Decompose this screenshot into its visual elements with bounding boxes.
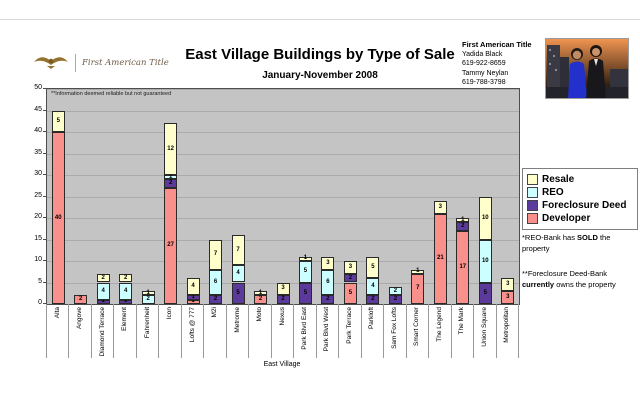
bar-segment: 3 bbox=[501, 278, 514, 291]
bar-segment: 2 bbox=[209, 295, 222, 304]
bar-segment: 10 bbox=[479, 240, 492, 283]
y-tick-label: 5 bbox=[6, 278, 42, 285]
page-divider bbox=[0, 19, 640, 20]
y-tick bbox=[43, 131, 46, 132]
segment-value-label: 7 bbox=[233, 247, 244, 253]
y-tick bbox=[43, 260, 46, 261]
segment-value-label: 4 bbox=[233, 270, 244, 276]
category-label: Icon bbox=[165, 307, 174, 359]
plot-area: **Information deemed reliable but not gu… bbox=[46, 88, 520, 305]
gridline bbox=[47, 89, 519, 90]
segment-value-label: 7 bbox=[412, 285, 423, 291]
category-tick bbox=[271, 304, 272, 358]
segment-value-label: 2 bbox=[143, 296, 154, 302]
segment-value-label: 10 bbox=[480, 215, 491, 221]
gridline bbox=[47, 261, 519, 262]
segment-value-label: 6 bbox=[322, 279, 333, 285]
segment-value-label: 7 bbox=[210, 251, 221, 257]
segment-value-label: 5 bbox=[300, 268, 311, 274]
bar-segment: 2 bbox=[277, 295, 290, 304]
category-label: Union Square bbox=[480, 307, 489, 359]
segment-value-label: 2 bbox=[98, 275, 109, 281]
category-tick bbox=[428, 304, 429, 358]
category-tick bbox=[473, 304, 474, 358]
category-label: Sam Fox Lofts bbox=[390, 307, 399, 359]
foreclosure-deed-swatch-icon bbox=[527, 200, 538, 211]
segment-value-label: 5 bbox=[345, 290, 356, 296]
category-label: Smart Corner bbox=[412, 307, 421, 359]
bar-segment: 5 bbox=[52, 111, 65, 133]
category-label: The Legend bbox=[435, 307, 444, 359]
company-logo: First American Title bbox=[33, 50, 169, 76]
bar-segment: 2 bbox=[321, 295, 334, 304]
segment-value-label: 3 bbox=[435, 204, 446, 210]
resale-swatch-icon bbox=[527, 174, 538, 185]
bar-segment: 1 bbox=[164, 175, 177, 179]
category-label: Diamond Terrace bbox=[98, 307, 107, 359]
bar-segment: 3 bbox=[277, 283, 290, 296]
legend-item-resale: Resale bbox=[527, 173, 633, 186]
gridline bbox=[47, 197, 519, 198]
y-tick bbox=[43, 196, 46, 197]
bar-segment: 4 bbox=[366, 278, 379, 295]
y-tick-label: 40 bbox=[6, 127, 42, 134]
segment-value-label: 3 bbox=[502, 294, 513, 300]
segment-value-label: 2 bbox=[120, 275, 131, 281]
bar-segment: 5 bbox=[232, 283, 245, 305]
segment-value-label: 12 bbox=[165, 146, 176, 152]
contact-line: 619-788-3798 bbox=[462, 78, 532, 88]
segment-value-label: 5 bbox=[53, 118, 64, 124]
category-tick bbox=[68, 304, 69, 358]
legend-item-foreclosure-deed: Foreclosure Deed bbox=[527, 199, 633, 212]
bar-segment: 21 bbox=[434, 214, 447, 304]
segment-value-label: 4 bbox=[188, 283, 199, 289]
gridline bbox=[47, 218, 519, 219]
category-tick bbox=[46, 304, 47, 358]
bar-segment: 2 bbox=[254, 295, 267, 304]
y-tick-label: 45 bbox=[6, 106, 42, 113]
segment-value-label: 2 bbox=[75, 296, 86, 302]
bar-segment: 2 bbox=[389, 287, 402, 296]
segment-value-label: 3 bbox=[278, 285, 289, 291]
contact-block: First American Title Yadida Black 619-92… bbox=[462, 40, 532, 88]
bar-segment: 4 bbox=[119, 283, 132, 300]
legend-item-reo: REO bbox=[527, 186, 633, 199]
category-label: Angove bbox=[75, 307, 84, 359]
category-label: Lofts @ 777 bbox=[188, 307, 197, 359]
bar-segment: 5 bbox=[299, 283, 312, 305]
segment-value-label: 4 bbox=[98, 288, 109, 294]
bar-segment: 10 bbox=[479, 197, 492, 240]
foreclosure-deed-note: **Foreclosure Deed-Bank currently owns t… bbox=[522, 268, 634, 290]
category-tick bbox=[248, 304, 249, 358]
bar-segment: 2 bbox=[142, 295, 155, 304]
segment-value-label: 5 bbox=[367, 264, 378, 270]
bar-segment: 6 bbox=[209, 270, 222, 296]
y-tick-label: 30 bbox=[6, 170, 42, 177]
category-label: Metrome bbox=[233, 307, 242, 359]
y-tick-label: 20 bbox=[6, 213, 42, 220]
category-tick bbox=[406, 304, 407, 358]
bar-segment: 1 bbox=[142, 291, 155, 295]
y-tick bbox=[43, 153, 46, 154]
y-tick-label: 35 bbox=[6, 149, 42, 156]
bar-segment: 5 bbox=[299, 261, 312, 283]
category-tick bbox=[518, 304, 519, 358]
category-label: Metropolitan bbox=[502, 307, 511, 359]
category-tick bbox=[181, 304, 182, 358]
chart-legend: Resale REO Foreclosure Deed Developer bbox=[522, 168, 638, 230]
gridline bbox=[47, 132, 519, 133]
segment-value-label: 2 bbox=[322, 296, 333, 302]
segment-value-label: 10 bbox=[480, 258, 491, 264]
category-label: Element bbox=[120, 307, 129, 359]
category-tick bbox=[361, 304, 362, 358]
category-label: The Mark bbox=[457, 307, 466, 359]
segment-value-label: 40 bbox=[53, 215, 64, 221]
category-label: Nexus bbox=[278, 307, 287, 359]
contact-line: 619-922-8659 bbox=[462, 59, 532, 69]
y-tick bbox=[43, 174, 46, 175]
eagle-icon bbox=[33, 51, 69, 76]
bar-segment: 5 bbox=[479, 283, 492, 305]
segment-value-label: 3 bbox=[345, 264, 356, 270]
segment-value-label: 1 bbox=[255, 290, 266, 296]
bar-segment: 7 bbox=[411, 274, 424, 304]
category-label: Fahrenheit bbox=[143, 307, 152, 359]
segment-value-label: 2 bbox=[457, 223, 468, 229]
bar-segment: 2 bbox=[119, 274, 132, 283]
segment-value-label: 1 bbox=[457, 217, 468, 223]
logo-divider bbox=[75, 54, 76, 72]
y-tick bbox=[43, 110, 46, 111]
contact-line: Tammy Neylan bbox=[462, 69, 532, 79]
legend-item-developer: Developer bbox=[527, 212, 633, 225]
bar-segment: 2 bbox=[366, 295, 379, 304]
reo-swatch-icon bbox=[527, 187, 538, 198]
contact-company: First American Title bbox=[462, 40, 532, 50]
segment-value-label: 1 bbox=[412, 268, 423, 274]
category-tick bbox=[136, 304, 137, 358]
category-tick bbox=[158, 304, 159, 358]
bar-segment: 4 bbox=[187, 278, 200, 295]
segment-value-label: 2 bbox=[210, 296, 221, 302]
x-axis-title: East Village bbox=[46, 361, 518, 368]
segment-value-label: 6 bbox=[210, 279, 221, 285]
segment-value-label: 5 bbox=[300, 290, 311, 296]
bar-segment: 27 bbox=[164, 188, 177, 304]
agents-photo bbox=[545, 38, 629, 99]
bar-segment: 1 bbox=[299, 257, 312, 261]
contact-line: Yadida Black bbox=[462, 50, 532, 60]
bar-segment: 5 bbox=[366, 257, 379, 279]
segment-value-label: 17 bbox=[457, 264, 468, 270]
chart-title: East Village Buildings by Type of Sale bbox=[150, 46, 490, 63]
y-tick-label: 15 bbox=[6, 235, 42, 242]
y-tick-label: 25 bbox=[6, 192, 42, 199]
bar-segment: 3 bbox=[434, 201, 447, 214]
category-label: Park Terrace bbox=[345, 307, 354, 359]
bar-segment: 17 bbox=[456, 231, 469, 304]
bar-segment: 2 bbox=[164, 179, 177, 188]
plot-disclaimer-note: **Information deemed reliable but not gu… bbox=[51, 91, 171, 97]
bar-segment: 2 bbox=[74, 295, 87, 304]
bar-segment: 7 bbox=[209, 240, 222, 270]
x-axis: East Village AltaAngoveDiamond TerraceEl… bbox=[46, 304, 518, 374]
y-tick bbox=[43, 217, 46, 218]
segment-value-label: 2 bbox=[390, 288, 401, 294]
y-tick bbox=[43, 282, 46, 283]
bar-segment: 1 bbox=[254, 291, 267, 295]
y-tick bbox=[43, 239, 46, 240]
category-label: Park Blvd East bbox=[300, 307, 309, 359]
bar-segment: 3 bbox=[321, 257, 334, 270]
gridline bbox=[47, 154, 519, 155]
segment-value-label: 2 bbox=[255, 296, 266, 302]
category-tick bbox=[113, 304, 114, 358]
category-label: Park Blvd West bbox=[322, 307, 331, 359]
y-tick-label: 0 bbox=[6, 299, 42, 306]
y-tick bbox=[43, 88, 46, 89]
gridline bbox=[47, 240, 519, 241]
bar-segment: 1 bbox=[187, 295, 200, 299]
segment-value-label: 1 bbox=[300, 255, 311, 261]
category-label: Moto bbox=[255, 307, 264, 359]
segment-value-label: 3 bbox=[322, 260, 333, 266]
segment-value-label: 2 bbox=[390, 296, 401, 302]
segment-value-label: 3 bbox=[502, 281, 513, 287]
segment-value-label: 5 bbox=[480, 290, 491, 296]
segment-value-label: 2 bbox=[165, 180, 176, 186]
gridline bbox=[47, 111, 519, 112]
bar-segment: 4 bbox=[232, 265, 245, 282]
reo-note: *REO-Bank has SOLD the property bbox=[522, 232, 634, 254]
chart-subtitle: January-November 2008 bbox=[150, 70, 490, 81]
category-tick bbox=[226, 304, 227, 358]
category-tick bbox=[203, 304, 204, 358]
segment-value-label: 4 bbox=[367, 283, 378, 289]
segment-value-label: 1 bbox=[143, 290, 154, 296]
developer-swatch-icon bbox=[527, 213, 538, 224]
category-label: Alta bbox=[53, 307, 62, 359]
bar-segment: 2 bbox=[344, 274, 357, 283]
category-label: M2i bbox=[210, 307, 219, 359]
bar-segment: 2 bbox=[97, 274, 110, 283]
segment-value-label: 5 bbox=[233, 290, 244, 296]
bar-segment: 6 bbox=[321, 270, 334, 296]
category-tick bbox=[383, 304, 384, 358]
segment-value-label: 2 bbox=[345, 275, 356, 281]
bar-segment: 7 bbox=[232, 235, 245, 265]
category-label: Parkloft bbox=[367, 307, 376, 359]
bar-segment: 12 bbox=[164, 123, 177, 175]
category-tick bbox=[316, 304, 317, 358]
bar-segment: 1 bbox=[411, 270, 424, 274]
bar-segment: 2 bbox=[456, 222, 469, 231]
bar-segment: 1 bbox=[456, 218, 469, 222]
bar-segment: 2 bbox=[389, 295, 402, 304]
bar-segment: 3 bbox=[501, 291, 514, 304]
bar-segment: 40 bbox=[52, 132, 65, 304]
gridline bbox=[47, 175, 519, 176]
y-tick bbox=[43, 303, 46, 304]
y-tick-label: 50 bbox=[6, 84, 42, 91]
segment-value-label: 4 bbox=[120, 288, 131, 294]
category-tick bbox=[496, 304, 497, 358]
segment-value-label: 21 bbox=[435, 255, 446, 261]
segment-value-label: 2 bbox=[278, 296, 289, 302]
bar-segment: 5 bbox=[344, 283, 357, 305]
category-tick bbox=[91, 304, 92, 358]
segment-value-label: 2 bbox=[367, 296, 378, 302]
bar-segment: 4 bbox=[97, 283, 110, 300]
category-tick bbox=[338, 304, 339, 358]
report-page: First American Title East Village Buildi… bbox=[0, 0, 640, 414]
bar-segment: 3 bbox=[344, 261, 357, 274]
segment-value-label: 27 bbox=[165, 242, 176, 248]
y-tick-label: 10 bbox=[6, 256, 42, 263]
category-tick bbox=[293, 304, 294, 358]
category-tick bbox=[451, 304, 452, 358]
